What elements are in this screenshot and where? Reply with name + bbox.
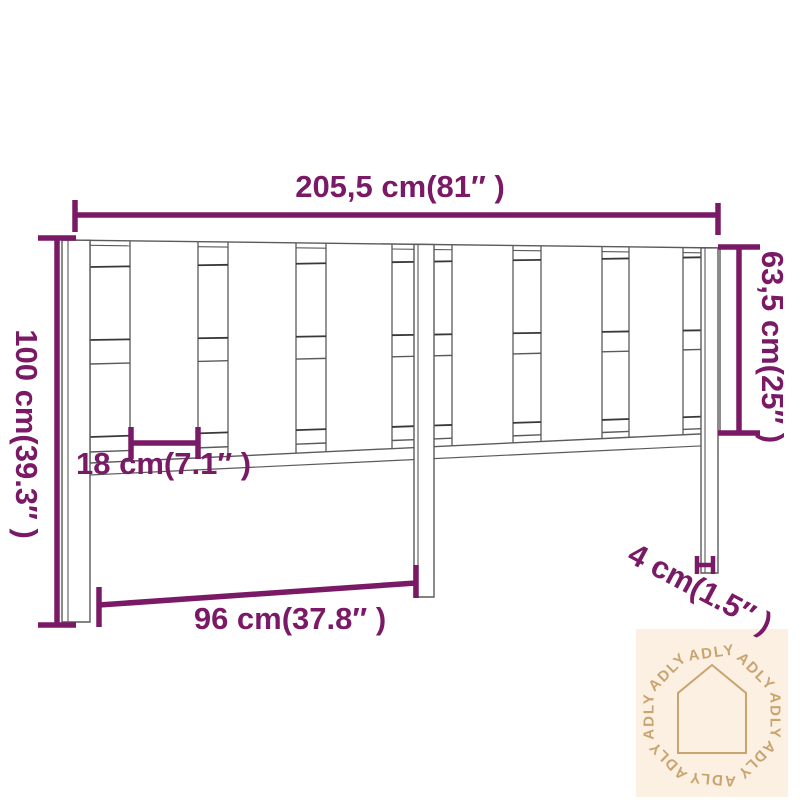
- diagram-canvas: 205,5 cm(81″ ) 100 cm(39.3″ ) 63,5 cm(25…: [0, 0, 800, 800]
- headboard-height-label: 63,5 cm(25″ ): [755, 197, 789, 497]
- leg-spacing-label: 96 cm(37.8″ ): [140, 602, 440, 636]
- slat-width-label: 18 cm(7.1″ ): [76, 447, 251, 481]
- total-height-label: 100 cm(39.3″ ): [9, 274, 43, 594]
- headboard-line-art: [0, 0, 800, 800]
- total-width-label: 205,5 cm(81″ ): [240, 170, 560, 204]
